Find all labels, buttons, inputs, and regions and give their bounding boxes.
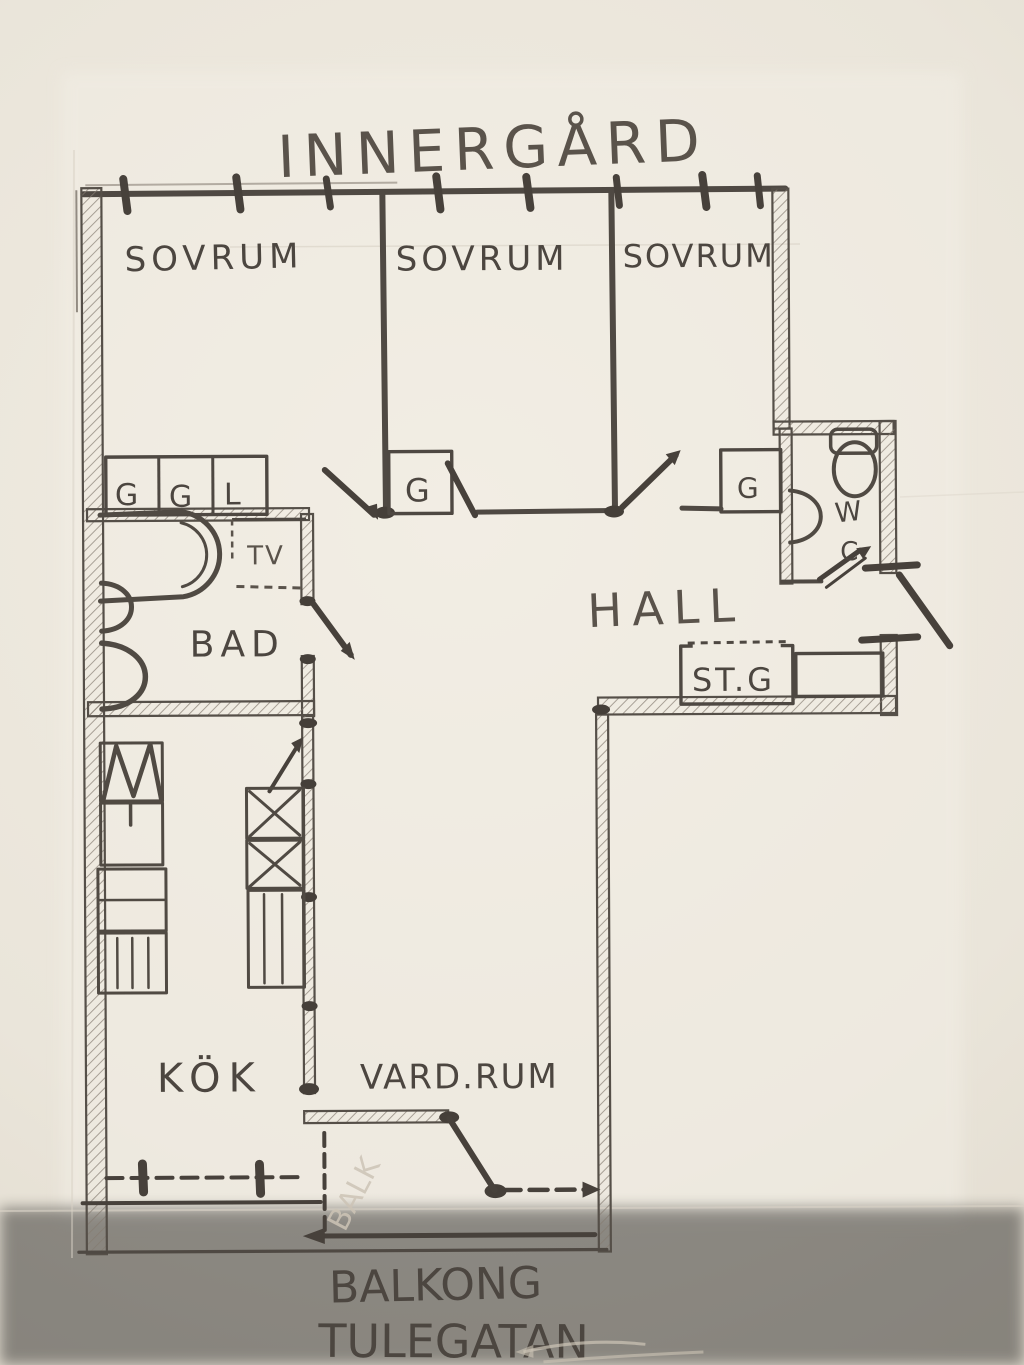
west-wall [81, 188, 107, 1254]
window-tick [142, 1164, 143, 1192]
bedrooms-south-wall [477, 510, 613, 512]
window-tick [616, 177, 619, 205]
window-tick [236, 177, 240, 209]
window-tick [123, 179, 127, 211]
east-wall-upper [772, 189, 789, 429]
east-wall-wc [880, 421, 897, 573]
bathroom-east-wall-upper [301, 514, 313, 604]
bedroom-divider-2 [611, 192, 615, 511]
street-label: TULEGATAN [317, 1314, 589, 1365]
kitchen-label: KÖK [157, 1053, 263, 1102]
hall-label: HALL [586, 578, 745, 638]
bathroom-label: BAD [190, 624, 285, 665]
wc-label-w: W [833, 496, 863, 530]
closet-row-letter-2: G [169, 480, 192, 515]
window-tick [702, 175, 706, 207]
bedroom3-closet-label: G [737, 472, 759, 505]
bedroom3-south-wall [682, 508, 721, 509]
kitchen-facade-line [83, 1202, 321, 1203]
bedroom-divider-1 [382, 194, 386, 513]
wall-cap [299, 1083, 319, 1095]
wall-cap [299, 718, 317, 728]
washer-label: TV [246, 541, 285, 571]
living-east-wall [596, 714, 611, 1251]
balcony-wall [304, 1110, 448, 1123]
balcony-label: BALKONG [329, 1258, 543, 1314]
bedroom1-label: SOVRUM [124, 236, 304, 280]
balcony-edge [321, 1235, 595, 1236]
bedroom2-closet-label: G [405, 471, 430, 509]
wall-cap [300, 654, 316, 664]
entrance-door-tick [862, 637, 918, 640]
closet-row-letter-1: G [115, 478, 138, 513]
bedroom2-label: SOVRUM [396, 239, 569, 280]
storage-closet-label: ST.G [692, 661, 775, 699]
living-room-label: VARD.RUM [360, 1057, 559, 1098]
bedroom3-label: SOVRUM [623, 237, 775, 276]
closet-row-letter-3: L [224, 477, 241, 512]
floor-plan-svg: SOVRUM SOVRUM SOVRUM HALL BAD KÖK VARD.R… [0, 0, 1024, 1365]
wall-cap [302, 1001, 318, 1011]
wc-label-c: C [840, 537, 858, 567]
window-tick [757, 176, 760, 206]
entrance-door-tick [865, 565, 917, 568]
floor-plan-sketch: SOVRUM SOVRUM SOVRUM HALL BAD KÖK VARD.R… [0, 0, 1024, 1365]
wall-cap [592, 704, 610, 714]
window-tick [526, 177, 530, 208]
window-tick [259, 1164, 260, 1193]
